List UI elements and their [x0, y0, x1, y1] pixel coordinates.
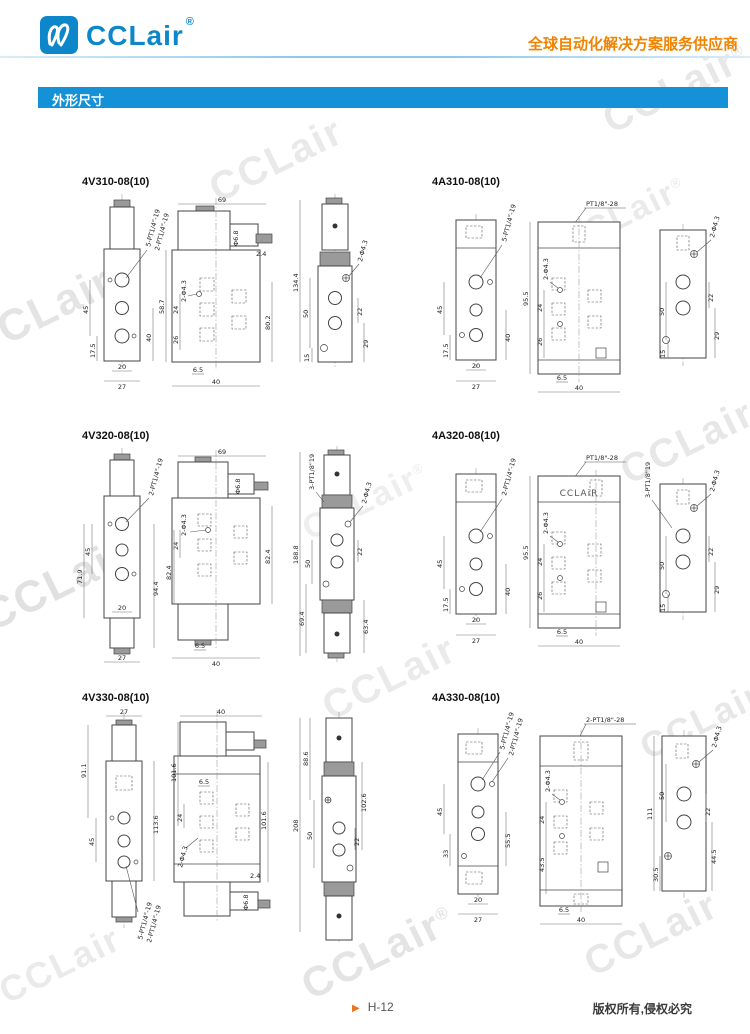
figure-title: 4A330-08(10) [432, 692, 722, 704]
svg-text:55.5: 55.5 [504, 834, 512, 848]
svg-text:2-Φ4.3: 2-Φ4.3 [356, 239, 369, 262]
svg-text:2-Φ4.3: 2-Φ4.3 [542, 258, 550, 280]
svg-text:95.5: 95.5 [522, 292, 530, 306]
svg-text:5-PT1/4"-19: 5-PT1/4"-19 [500, 203, 518, 242]
svg-text:2.4: 2.4 [256, 250, 266, 258]
svg-text:45: 45 [436, 808, 444, 816]
svg-text:40: 40 [212, 378, 220, 386]
section-title: 外形尺寸 [38, 87, 728, 109]
svg-text:40: 40 [145, 334, 153, 342]
svg-text:24: 24 [536, 304, 544, 312]
svg-text:6.5: 6.5 [199, 778, 209, 786]
svg-text:40: 40 [504, 334, 512, 342]
svg-text:2-Φ4.3: 2-Φ4.3 [180, 514, 188, 536]
svg-text:PT1/8"-28: PT1/8"-28 [586, 454, 618, 462]
svg-text:27: 27 [474, 916, 482, 924]
svg-text:2-Φ4.3: 2-Φ4.3 [708, 215, 721, 238]
drawing-4A320: 2-PT1/4"-19 45 17.5 40 20 27 PT1/8"-28 C… [400, 444, 722, 669]
svg-text:29: 29 [362, 340, 370, 348]
svg-text:20: 20 [474, 896, 482, 904]
copyright-notice: 版权所有,侵权必究 [593, 1000, 692, 1017]
svg-text:2-PT1/4"-19: 2-PT1/4"-19 [147, 457, 165, 496]
svg-text:50: 50 [658, 308, 666, 316]
view-front: PT1/8"-28 CCLAiR 2-Φ4.3 95.5 24 26 6.5 4… [522, 454, 626, 646]
svg-text:27: 27 [118, 383, 126, 391]
svg-text:Φ6.8: Φ6.8 [242, 895, 250, 910]
svg-text:24: 24 [538, 816, 546, 824]
svg-text:91.1: 91.1 [80, 764, 88, 778]
svg-text:6.5: 6.5 [557, 374, 567, 382]
svg-text:3-PT1/8"19: 3-PT1/8"19 [308, 454, 316, 490]
svg-text:24: 24 [536, 558, 544, 566]
svg-text:20: 20 [118, 604, 126, 612]
svg-text:3-PT1/8"19: 3-PT1/8"19 [644, 462, 652, 498]
drawing-4V320: 2-PT1/4"-19 45 71.9 94.4 20 27 69 Φ6.8 2… [50, 444, 372, 669]
svg-text:22: 22 [356, 308, 364, 316]
svg-text:2-Φ4.3: 2-Φ4.3 [710, 725, 722, 748]
view-left: 5-PT1/4"-19 2-PT1/4"-19 45 17.5 40 20 27 [82, 194, 171, 391]
svg-text:50: 50 [306, 832, 314, 840]
svg-text:27: 27 [118, 654, 126, 662]
svg-text:17.5: 17.5 [442, 598, 450, 612]
cclair-logo-icon [40, 16, 78, 54]
figure-title: 4A310-08(10) [432, 176, 722, 188]
figure-title: 4V320-08(10) [82, 430, 372, 442]
view-front: PT1/8"-28 2-Φ4.3 95.5 24 26 6.5 40 [522, 200, 626, 392]
svg-text:6.5: 6.5 [559, 906, 569, 914]
svg-text:58.7: 58.7 [158, 300, 166, 314]
svg-text:40: 40 [217, 708, 225, 716]
svg-text:2-Φ4.3: 2-Φ4.3 [360, 481, 372, 504]
svg-text:33: 33 [442, 850, 450, 858]
view-front: 69 Φ6.8 2-Φ4.3 24 82.4 82.4 6.5 40 [165, 448, 272, 668]
svg-text:24: 24 [172, 306, 180, 314]
svg-text:2-Φ4.3: 2-Φ4.3 [542, 512, 550, 534]
svg-text:69: 69 [218, 448, 226, 456]
company-tagline: 全球自动化解决方案服务供应商 [528, 33, 738, 54]
svg-text:40: 40 [575, 384, 583, 392]
svg-text:82.4: 82.4 [264, 550, 272, 564]
view-side: 2-Φ4.3 111 50 30.5 22 44.5 [646, 725, 722, 898]
view-side: 2-Φ4.3 50 15 22 29 [658, 215, 722, 366]
svg-text:113.6: 113.6 [152, 815, 160, 834]
figure-4A310: 4A310-08(10) 5-PT1/4"-19 45 17.5 40 20 2… [400, 176, 722, 415]
svg-text:15: 15 [659, 350, 667, 358]
figure-4V330: 4V330-08(10) 27 91.1 45 113.6 5-PT1/4"-1… [50, 692, 372, 946]
view-side: 3-PT1/8"19 2-Φ4.3 50 15 22 29 [644, 462, 722, 620]
engraved-brand: CCLAiR [560, 489, 599, 499]
svg-text:26: 26 [536, 338, 544, 346]
svg-text:6.5: 6.5 [195, 642, 205, 650]
svg-text:22: 22 [353, 838, 361, 846]
svg-text:82.4: 82.4 [165, 566, 173, 580]
svg-text:17.5: 17.5 [89, 344, 97, 358]
svg-text:40: 40 [212, 660, 220, 668]
svg-text:Φ6.8: Φ6.8 [234, 479, 242, 494]
svg-text:208: 208 [292, 820, 300, 832]
svg-text:PT1/8"-28: PT1/8"-28 [586, 200, 618, 208]
svg-text:50: 50 [302, 310, 310, 318]
view-left: 2-PT1/4"-19 45 17.5 40 20 27 [436, 457, 518, 645]
svg-text:111: 111 [646, 808, 654, 820]
svg-text:20: 20 [472, 616, 480, 624]
figure-4A330: 4A330-08(10) 5-PT1/4"-19 2-PT1/4"-19 45 … [400, 692, 722, 946]
figure-4A320: 4A320-08(10) 2-PT1/4"-19 45 17.5 40 20 2… [400, 430, 722, 669]
svg-text:29: 29 [713, 332, 721, 340]
svg-text:63.4: 63.4 [362, 620, 370, 634]
page-number: ▶H-12 [352, 1000, 394, 1014]
svg-text:45: 45 [436, 560, 444, 568]
svg-text:15: 15 [659, 604, 667, 612]
figure-4V320: 4V320-08(10) 2-PT1/4"-19 45 71.9 94.4 20… [50, 430, 372, 669]
figure-title: 4A320-08(10) [432, 430, 722, 442]
figure-title: 4V310-08(10) [82, 176, 372, 188]
drawing-4A330: 5-PT1/4"-19 2-PT1/4"-19 45 33 55.5 20 27… [400, 706, 722, 946]
svg-text:26: 26 [536, 592, 544, 600]
svg-text:101.6: 101.6 [170, 763, 178, 782]
svg-text:45: 45 [88, 838, 96, 846]
svg-text:27: 27 [472, 637, 480, 645]
view-left: 2-PT1/4"-19 45 71.9 94.4 20 27 [76, 448, 165, 662]
svg-text:43.5: 43.5 [538, 858, 546, 872]
svg-text:88.6: 88.6 [302, 752, 310, 766]
svg-text:24: 24 [176, 814, 184, 822]
svg-text:50: 50 [304, 560, 312, 568]
svg-text:45: 45 [84, 548, 92, 556]
svg-text:69.4: 69.4 [298, 612, 306, 626]
svg-text:22: 22 [356, 548, 364, 556]
svg-text:134.4: 134.4 [292, 273, 300, 292]
figure-title: 4V330-08(10) [82, 692, 372, 704]
svg-text:101.6: 101.6 [260, 811, 268, 830]
view-side: 134.4 2-Φ4.3 50 15 22 29 [292, 194, 370, 368]
svg-text:45: 45 [82, 306, 90, 314]
svg-text:2.4: 2.4 [250, 872, 260, 880]
header-divider [0, 56, 750, 58]
svg-text:69: 69 [218, 196, 226, 204]
view-left: 5-PT1/4"-19 2-PT1/4"-19 45 33 55.5 20 27 [436, 711, 525, 924]
svg-text:40: 40 [504, 588, 512, 596]
drawing-4V310: 5-PT1/4"-19 2-PT1/4"-19 45 17.5 40 20 27… [50, 190, 372, 415]
svg-text:40: 40 [577, 916, 585, 924]
svg-text:6.5: 6.5 [557, 628, 567, 636]
svg-text:20: 20 [472, 362, 480, 370]
svg-text:45: 45 [436, 306, 444, 314]
figure-4V310: 4V310-08(10) 5-PT1/4"-19 2-PT1/4"-19 45 … [50, 176, 372, 415]
svg-text:2-PT1/4"-19: 2-PT1/4"-19 [500, 457, 518, 496]
section-header-bar: 外形尺寸 [38, 87, 728, 108]
svg-text:2-Φ4.3: 2-Φ4.3 [544, 770, 552, 792]
svg-text:95.5: 95.5 [522, 546, 530, 560]
svg-text:30.5: 30.5 [652, 868, 660, 882]
svg-text:27: 27 [472, 383, 480, 391]
svg-text:80.2: 80.2 [264, 316, 272, 330]
svg-text:2-Φ4.3: 2-Φ4.3 [180, 280, 188, 302]
svg-text:26: 26 [172, 336, 180, 344]
svg-text:29: 29 [713, 586, 721, 594]
svg-text:188.8: 188.8 [292, 545, 300, 564]
view-side: 208 88.6 50 102.6 22 [292, 712, 368, 942]
view-side: 188.8 3-PT1/8"19 2-Φ4.3 50 22 69.4 63.4 [292, 446, 372, 662]
svg-text:50: 50 [658, 792, 666, 800]
svg-text:20: 20 [118, 363, 126, 371]
logo-wordmark: CCLair® [86, 20, 193, 52]
svg-text:15: 15 [303, 354, 311, 362]
svg-text:6.5: 6.5 [193, 366, 203, 374]
svg-text:40: 40 [575, 638, 583, 646]
svg-text:44.5: 44.5 [710, 850, 718, 864]
svg-text:71.9: 71.9 [76, 570, 84, 584]
view-front: 40 101.6 6.5 24 2-Φ4.3 101.6 2.4 Φ6.8 [170, 708, 270, 922]
drawing-4V330: 27 91.1 45 113.6 5-PT1/4"-19 2-PT1/4"-19… [50, 706, 372, 946]
svg-text:22: 22 [704, 808, 712, 816]
svg-text:94.4: 94.4 [152, 582, 160, 596]
logo-swirl-icon [40, 16, 78, 54]
svg-text:22: 22 [707, 548, 715, 556]
svg-text:24: 24 [172, 542, 180, 550]
svg-text:102.6: 102.6 [360, 793, 368, 812]
svg-text:22: 22 [707, 294, 715, 302]
svg-text:2-PT1/8"-28: 2-PT1/8"-28 [586, 716, 624, 724]
drawing-4A310: 5-PT1/4"-19 45 17.5 40 20 27 PT1/8"-28 2… [400, 190, 722, 415]
page-marker-icon: ▶ [352, 1003, 360, 1014]
view-front: 69 2-Φ4.3 Φ6.8 2.4 58.7 24 26 80.2 6.5 4… [158, 196, 272, 386]
view-front: 2-PT1/8"-28 2-Φ4.3 24 43.5 6.5 40 [538, 716, 636, 924]
svg-text:2-Φ4.3: 2-Φ4.3 [708, 469, 721, 492]
svg-text:50: 50 [658, 562, 666, 570]
view-left: 5-PT1/4"-19 45 17.5 40 20 27 [436, 203, 518, 391]
svg-text:Φ6.8: Φ6.8 [232, 231, 240, 246]
view-left: 27 91.1 45 113.6 5-PT1/4"-19 2-PT1/4"-19 [80, 708, 163, 944]
svg-text:17.5: 17.5 [442, 344, 450, 358]
